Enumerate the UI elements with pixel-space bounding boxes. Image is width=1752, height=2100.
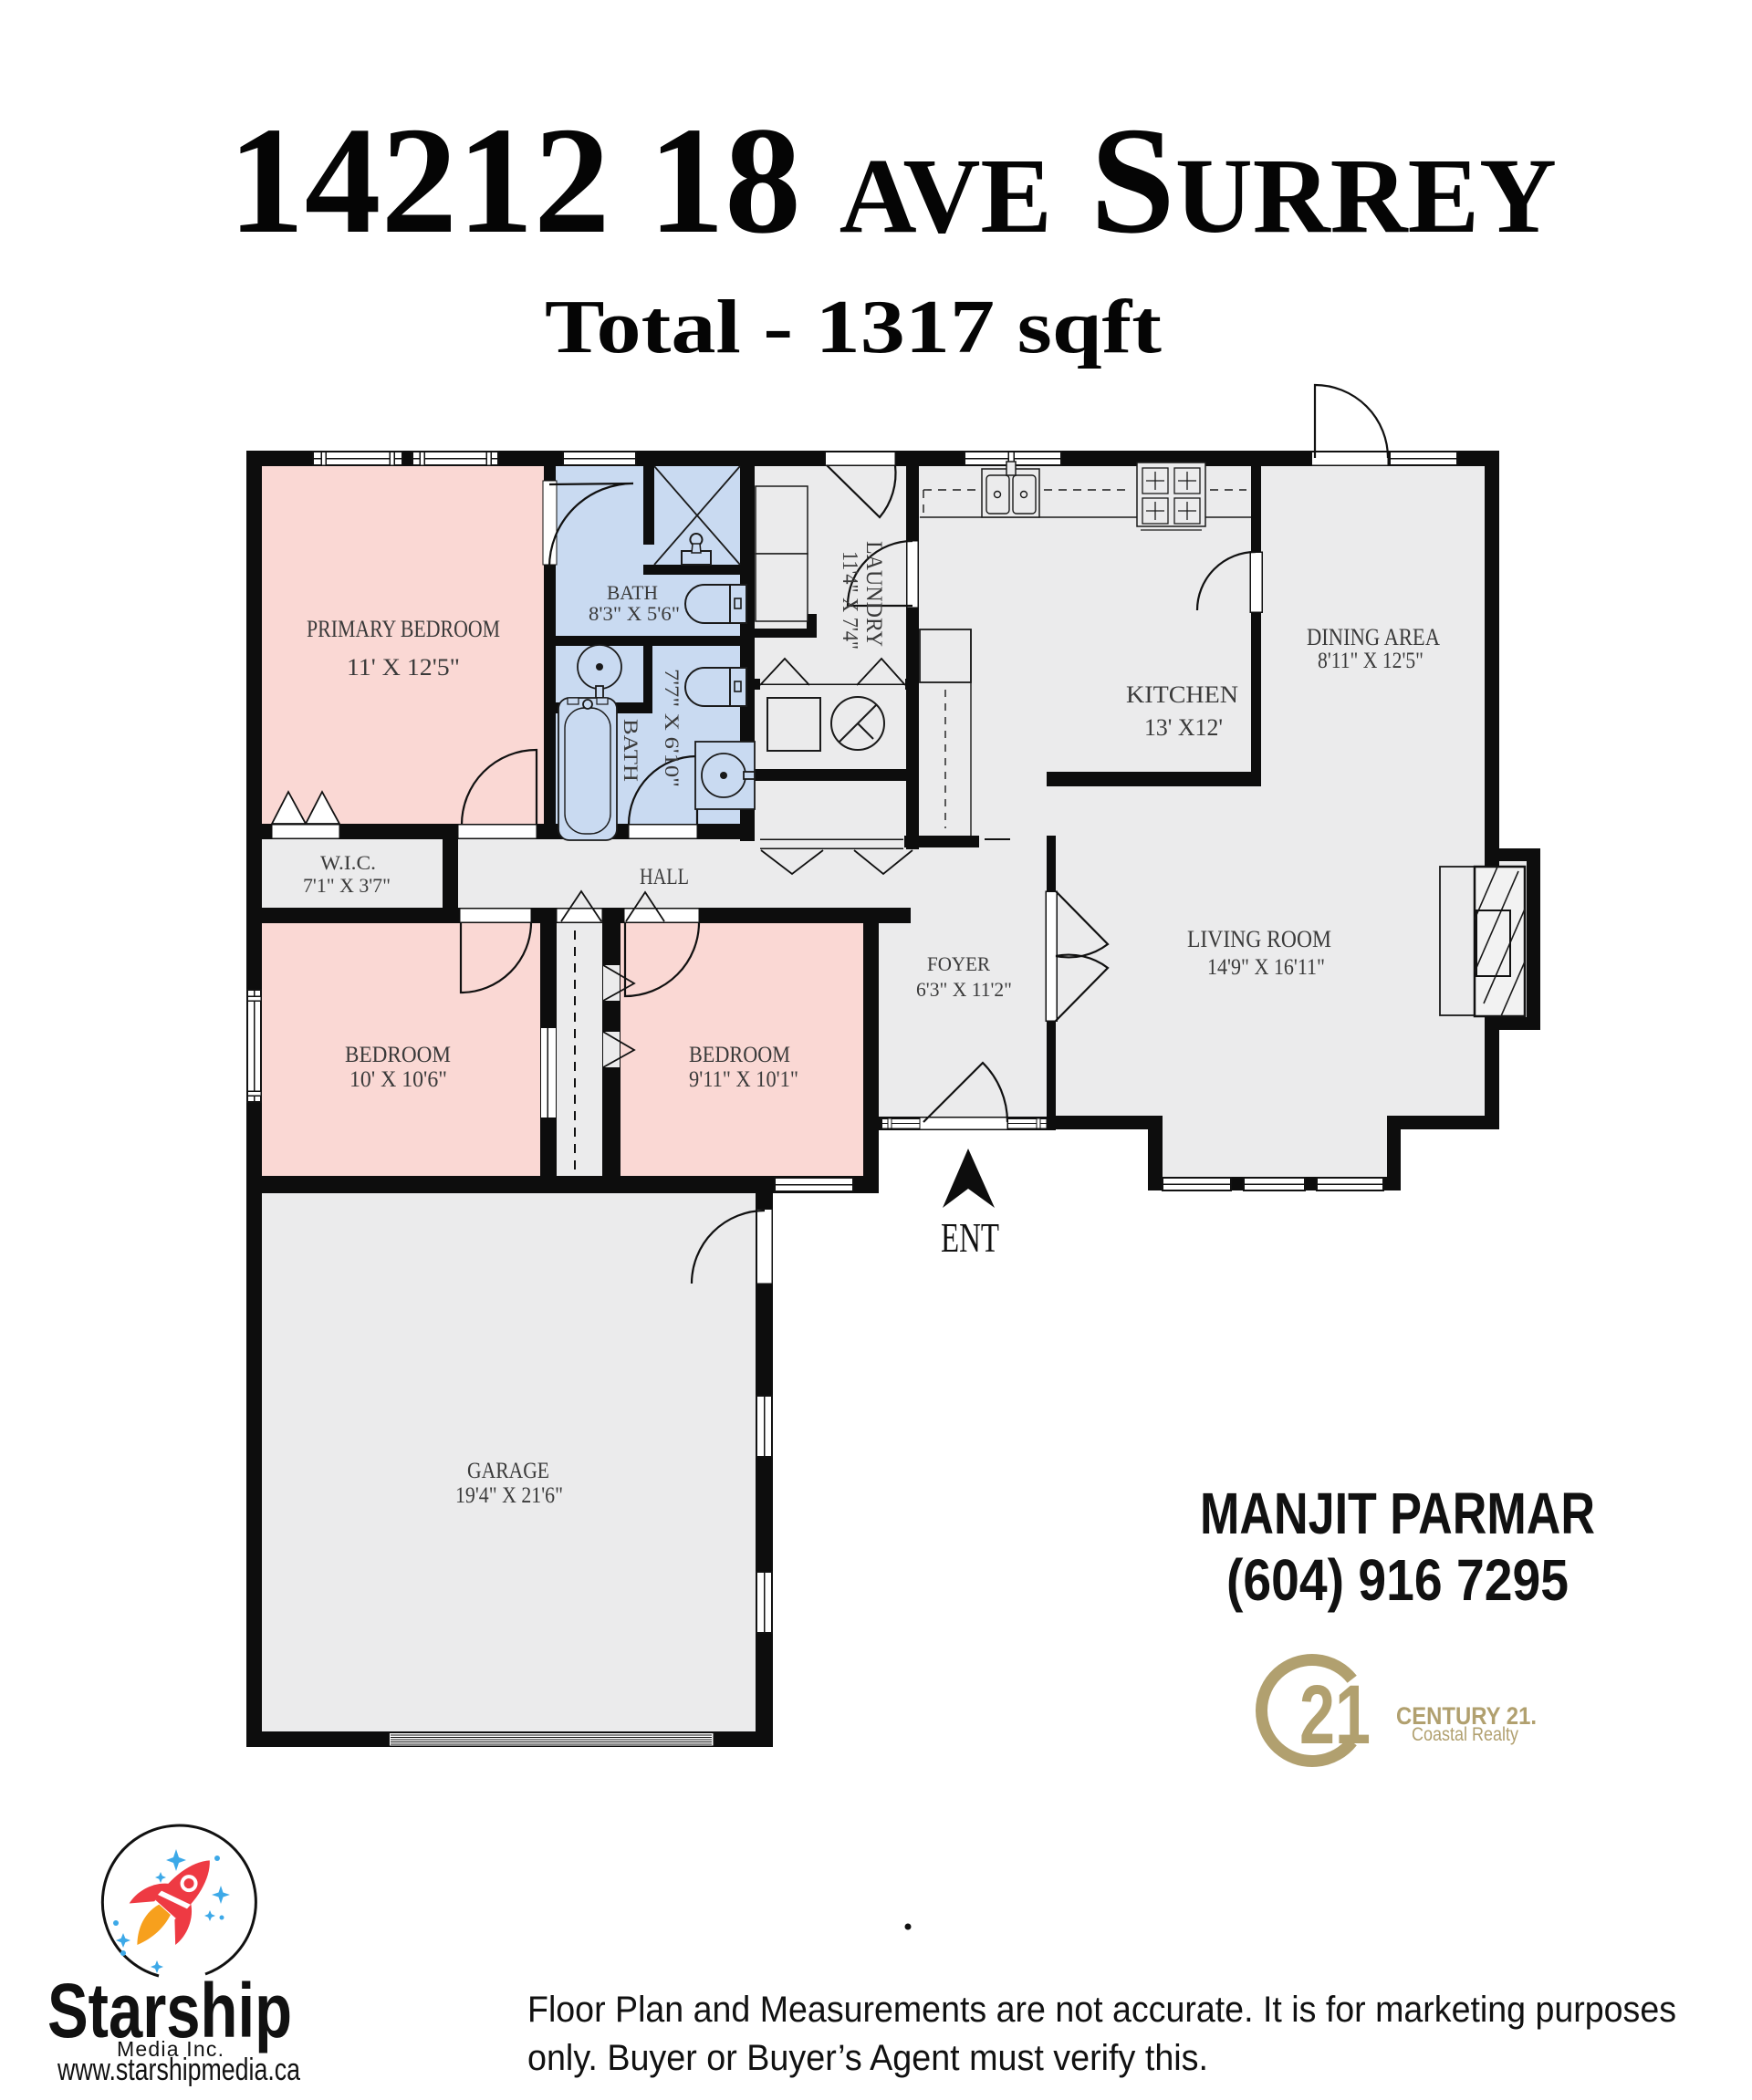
svg-text:BATH: BATH <box>620 719 642 782</box>
svg-text:14'9" X 16'11": 14'9" X 16'11" <box>1207 955 1325 980</box>
svg-text:HALL: HALL <box>640 865 689 889</box>
svg-text:9'11" X 10'1": 9'11" X 10'1" <box>689 1067 798 1092</box>
svg-text:11'4" X 7'4": 11'4" X 7'4" <box>838 551 861 650</box>
svg-text:LAUNDRY: LAUNDRY <box>861 541 886 647</box>
svg-text:PRIMARY BEDROOM: PRIMARY BEDROOM <box>307 616 500 642</box>
svg-text:BEDROOM: BEDROOM <box>345 1043 451 1067</box>
svg-text:GARAGE: GARAGE <box>467 1459 549 1483</box>
svg-text:10' X 10'6": 10' X 10'6" <box>349 1067 447 1092</box>
svg-text:8'11" X 12'5": 8'11" X 12'5" <box>1318 649 1423 673</box>
svg-text:11' X 12'5": 11' X 12'5" <box>347 654 460 681</box>
svg-text:Floor Plan and Measurements ar: Floor Plan and Measurements are not accu… <box>527 1990 1676 2030</box>
svg-text:19'4" X 21'6": 19'4" X 21'6" <box>455 1483 563 1508</box>
svg-text:14212 18 ave Surrey: 14212 18 ave Surrey <box>228 96 1557 265</box>
svg-text:BEDROOM: BEDROOM <box>689 1043 790 1067</box>
svg-text:LIVING ROOM: LIVING ROOM <box>1187 926 1331 952</box>
svg-text:KITCHEN: KITCHEN <box>1126 681 1238 708</box>
svg-text:DINING AREA: DINING AREA <box>1307 624 1440 650</box>
svg-text:W.I.C.: W.I.C. <box>320 851 376 874</box>
svg-text:21: 21 <box>1299 1669 1371 1762</box>
svg-text:8'3" X 5'6": 8'3" X 5'6" <box>589 602 680 625</box>
svg-text:(604) 916 7295: (604) 916 7295 <box>1226 1547 1569 1613</box>
svg-text:only. Buyer or Buyer’s Agent m: only. Buyer or Buyer’s Agent must verify… <box>527 2038 1208 2078</box>
svg-text:Coastal Realty: Coastal Realty <box>1412 1724 1518 1745</box>
svg-text:6'3" X 11'2": 6'3" X 11'2" <box>916 978 1012 1001</box>
svg-text:MANJIT PARMAR: MANJIT PARMAR <box>1200 1481 1595 1546</box>
svg-text:www.starshipmedia.ca: www.starshipmedia.ca <box>57 2053 300 2087</box>
svg-text:13' X12': 13' X12' <box>1144 714 1223 741</box>
svg-text:FOYER: FOYER <box>927 952 990 975</box>
svg-text:7'1" X 3'7": 7'1" X 3'7" <box>303 874 391 897</box>
svg-text:Total - 1317 sqft: Total - 1317 sqft <box>545 285 1162 369</box>
svg-text:7'7" X 6'10": 7'7" X 6'10" <box>661 669 683 787</box>
svg-text:ENT: ENT <box>941 1214 999 1261</box>
svg-text:BATH: BATH <box>607 581 658 604</box>
